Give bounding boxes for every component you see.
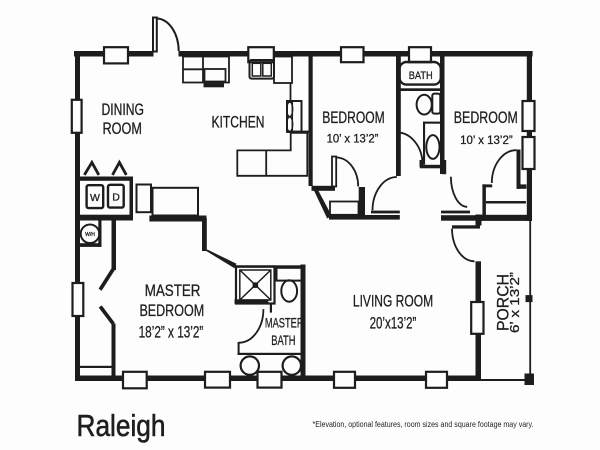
svg-text:Raleigh: Raleigh <box>77 409 166 443</box>
svg-text:20’x13’2”: 20’x13’2” <box>370 315 417 333</box>
svg-text:ROOM: ROOM <box>103 120 143 138</box>
svg-text:BEDROOM: BEDROOM <box>322 109 385 127</box>
svg-text:W/H: W/H <box>85 232 95 238</box>
svg-text:KITCHEN: KITCHEN <box>212 113 265 131</box>
svg-text:10’ x 13’2”: 10’ x 13’2” <box>327 131 379 145</box>
svg-text:DINING: DINING <box>102 101 145 119</box>
svg-text:6’ x 13’2”: 6’ x 13’2” <box>508 272 522 333</box>
svg-text:BATH: BATH <box>409 70 433 82</box>
svg-text:MASTER: MASTER <box>145 282 201 300</box>
svg-text:10’ x 13’2”: 10’ x 13’2” <box>460 133 513 147</box>
svg-text:*Elevation, optional features,: *Elevation, optional features, room size… <box>313 420 534 429</box>
svg-text:LIVING ROOM: LIVING ROOM <box>353 291 433 310</box>
svg-text:MASTER: MASTER <box>265 315 304 330</box>
svg-text:BEDROOM: BEDROOM <box>454 109 518 127</box>
svg-text:BEDROOM: BEDROOM <box>139 302 204 320</box>
svg-text:BATH: BATH <box>271 333 295 348</box>
svg-text:W: W <box>90 192 100 204</box>
svg-text:18’2” x 13’2”: 18’2” x 13’2” <box>139 324 204 342</box>
svg-text:D: D <box>112 192 120 204</box>
